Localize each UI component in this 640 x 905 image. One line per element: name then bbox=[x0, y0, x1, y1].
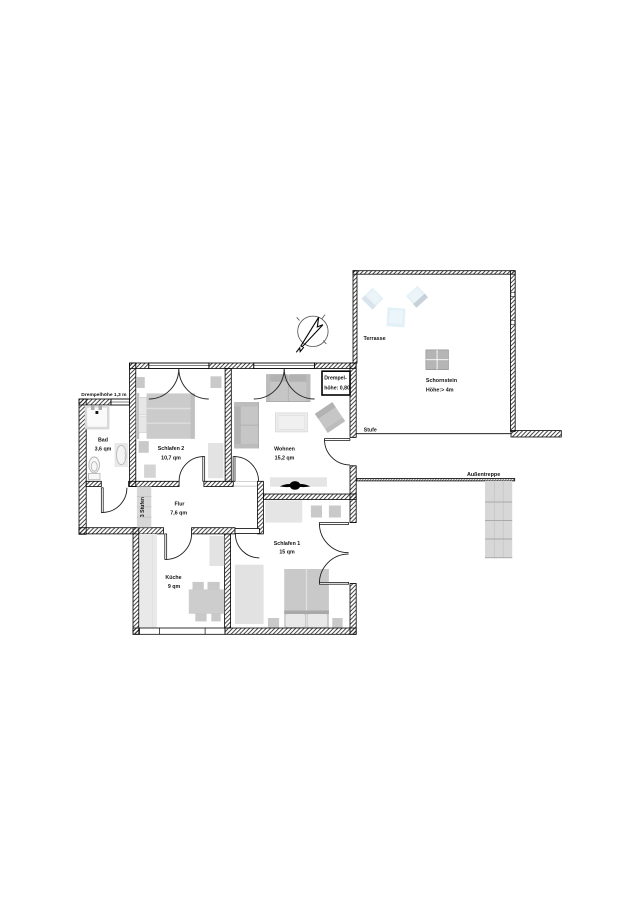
svg-text:7,6 qm: 7,6 qm bbox=[170, 511, 187, 517]
svg-text:höhe: 0,80: höhe: 0,80 bbox=[324, 385, 350, 391]
svg-text:Schlafen 2: Schlafen 2 bbox=[158, 446, 185, 452]
svg-text:3 Stufen: 3 Stufen bbox=[140, 497, 146, 517]
svg-text:Schlafen 1: Schlafen 1 bbox=[274, 541, 301, 547]
svg-text:Wohnen: Wohnen bbox=[274, 446, 295, 452]
svg-text:Küche: Küche bbox=[165, 575, 181, 581]
svg-text:10,7 qm: 10,7 qm bbox=[161, 455, 181, 461]
svg-text:Außentreppe: Außentreppe bbox=[467, 472, 500, 478]
svg-text:Schornstein: Schornstein bbox=[426, 378, 457, 384]
svg-text:Stufe: Stufe bbox=[364, 428, 377, 434]
svg-text:Flur: Flur bbox=[174, 502, 184, 508]
svg-text:Terrasse: Terrasse bbox=[364, 336, 386, 342]
svg-text:Bad: Bad bbox=[98, 438, 108, 444]
svg-text:Drempel-: Drempel- bbox=[324, 376, 347, 382]
svg-text:15,2 qm: 15,2 qm bbox=[275, 455, 295, 461]
svg-text:15 qm: 15 qm bbox=[279, 550, 295, 556]
svg-text:Höhe:> 4m: Höhe:> 4m bbox=[426, 388, 454, 394]
svg-text:9 qm: 9 qm bbox=[168, 584, 181, 590]
svg-text:3,6 qm: 3,6 qm bbox=[95, 447, 112, 453]
svg-text:Drempelhöhe 1,3 m: Drempelhöhe 1,3 m bbox=[81, 392, 127, 398]
